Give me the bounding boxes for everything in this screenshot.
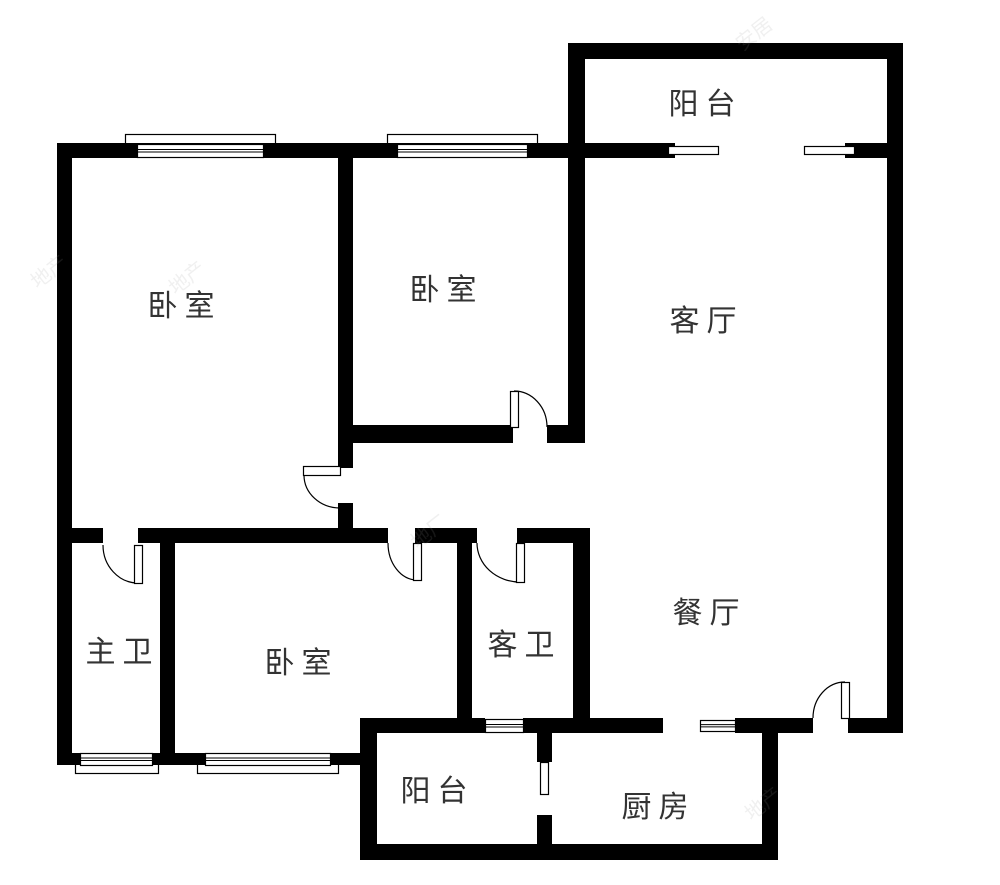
door-swing-arc bbox=[477, 543, 520, 582]
door-swing-arc bbox=[388, 543, 417, 580]
wall bbox=[57, 528, 103, 543]
door-swing-arc bbox=[103, 545, 138, 583]
room-label-bedroom-3: 卧室 bbox=[258, 638, 339, 682]
wall bbox=[360, 718, 485, 733]
wall bbox=[568, 43, 585, 443]
room-label-bedroom-2: 卧室 bbox=[403, 265, 484, 309]
room-label-master-bath: 主卫 bbox=[79, 627, 160, 671]
wall bbox=[735, 718, 813, 733]
room-label-dining-room: 餐厅 bbox=[666, 588, 747, 632]
wall bbox=[537, 733, 552, 762]
wall bbox=[547, 425, 585, 443]
room-label-balcony-top: 阳台 bbox=[662, 79, 743, 123]
wall bbox=[152, 753, 205, 765]
door-swing-arc bbox=[813, 682, 845, 718]
wall bbox=[338, 143, 353, 468]
window bbox=[701, 721, 736, 732]
wall bbox=[360, 718, 377, 858]
window bbox=[81, 754, 153, 766]
sliding-door-panel bbox=[669, 147, 719, 155]
door-swing-arc bbox=[304, 475, 340, 508]
wall bbox=[570, 43, 903, 59]
window bbox=[138, 145, 264, 158]
wall bbox=[57, 753, 80, 765]
window bbox=[398, 145, 528, 158]
room-label-guest-bath: 客卫 bbox=[481, 620, 562, 664]
wall bbox=[523, 718, 663, 733]
window bbox=[486, 720, 524, 733]
room-label-balcony-bottom: 阳台 bbox=[394, 766, 475, 810]
wall bbox=[573, 528, 590, 718]
window bbox=[206, 754, 331, 766]
wall bbox=[138, 528, 388, 543]
door-leaf bbox=[135, 546, 143, 584]
sliding-door-panel bbox=[805, 147, 855, 155]
wall bbox=[350, 425, 513, 443]
door-leaf bbox=[842, 683, 850, 719]
door-leaf bbox=[511, 392, 519, 428]
wall bbox=[330, 753, 360, 765]
door-leaf bbox=[517, 544, 525, 583]
wall bbox=[360, 844, 778, 860]
wall bbox=[848, 718, 903, 733]
wall bbox=[160, 543, 175, 753]
wall bbox=[457, 543, 472, 718]
wall bbox=[57, 143, 72, 765]
door-leaf bbox=[304, 467, 341, 476]
wall bbox=[585, 143, 675, 158]
room-label-kitchen: 厨房 bbox=[615, 782, 696, 826]
floorplan-drawing bbox=[0, 0, 1000, 885]
door-leaf bbox=[541, 763, 549, 795]
room-label-living-room: 客厅 bbox=[663, 296, 744, 340]
wall bbox=[537, 815, 552, 845]
floor-plan: 阳台卧室卧室客厅主卫卧室客卫餐厅阳台厨房 地产地产地厂安居地产 bbox=[0, 0, 1000, 885]
